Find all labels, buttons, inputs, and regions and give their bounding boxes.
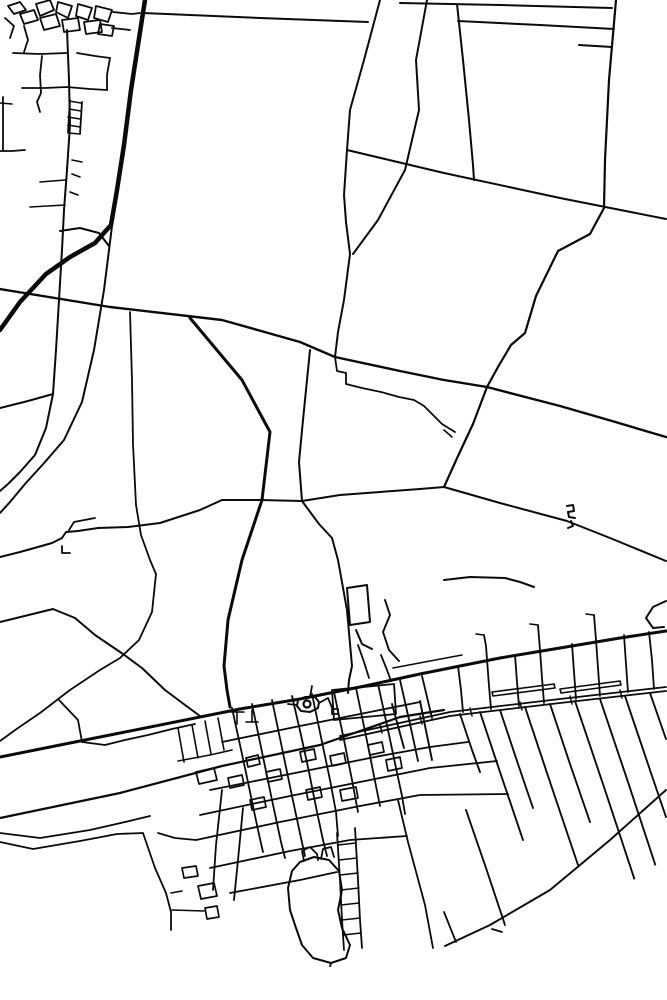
road-line bbox=[0, 150, 25, 151]
road-line bbox=[530, 624, 538, 625]
road-line bbox=[172, 910, 204, 911]
road-line bbox=[288, 704, 297, 705]
road-line bbox=[476, 634, 484, 635]
road-line bbox=[13, 53, 67, 54]
map-canvas bbox=[0, 0, 667, 1000]
map-poster bbox=[0, 0, 667, 1000]
road-line bbox=[586, 614, 594, 615]
roundabout-circle bbox=[304, 701, 311, 708]
map-background bbox=[0, 0, 667, 1000]
road-line bbox=[0, 103, 12, 104]
